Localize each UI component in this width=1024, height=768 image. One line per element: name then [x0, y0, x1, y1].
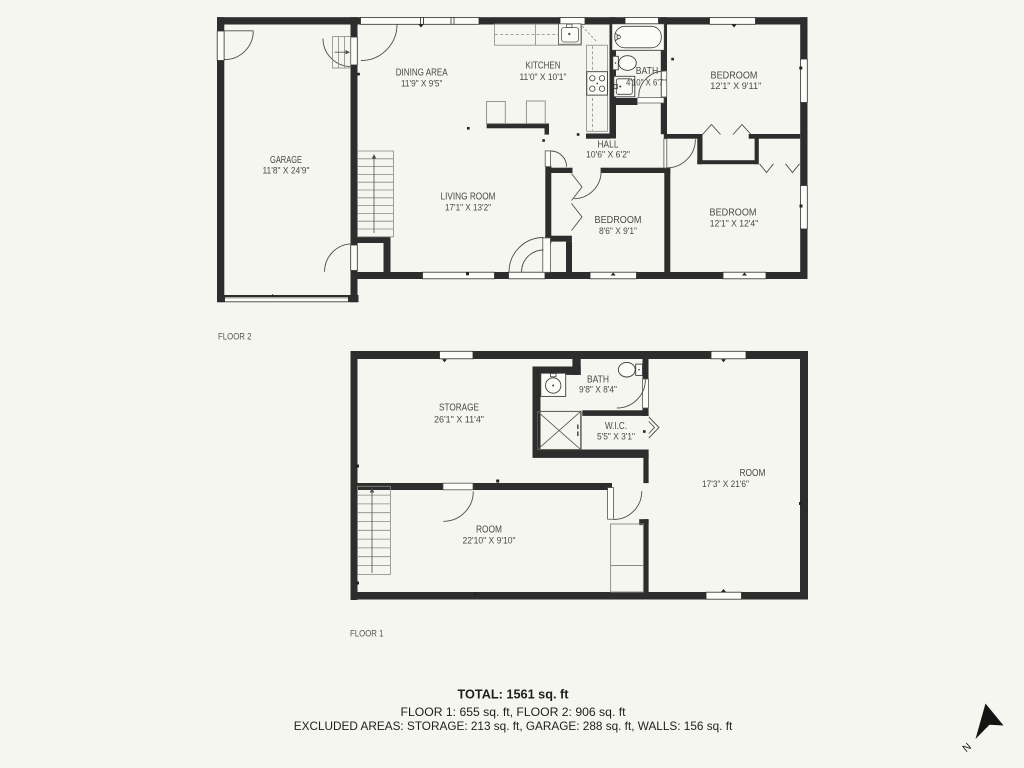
svg-text:FLOOR 1: FLOOR 1 [350, 629, 384, 640]
svg-text:TOTAL: 1561 sq. ft: TOTAL: 1561 sq. ft [458, 687, 570, 702]
svg-text:17'1" X 13'2": 17'1" X 13'2" [445, 202, 491, 213]
svg-text:11'8" X 24'9": 11'8" X 24'9" [263, 164, 310, 175]
svg-text:EXCLUDED AREAS: STORAGE: 213 s: EXCLUDED AREAS: STORAGE: 213 sq. ft, GAR… [294, 719, 733, 733]
svg-text:10'6" X 6'2": 10'6" X 6'2" [586, 148, 630, 159]
svg-text:9'8" X 8'4": 9'8" X 8'4" [579, 383, 617, 394]
svg-text:22'10" X 9'10": 22'10" X 9'10" [463, 535, 516, 546]
svg-text:5'5" X 3'1": 5'5" X 3'1" [597, 430, 635, 441]
svg-text:11'0" X 10'1": 11'0" X 10'1" [520, 71, 567, 82]
svg-text:26'1" X 11'4": 26'1" X 11'4" [434, 414, 484, 425]
svg-text:11'9" X 9'5": 11'9" X 9'5" [401, 78, 443, 89]
svg-text:12'1" X 12'4": 12'1" X 12'4" [710, 217, 759, 228]
svg-text:BATH: BATH [636, 66, 659, 77]
svg-text:12'1" X 9'11": 12'1" X 9'11" [710, 80, 761, 91]
svg-text:FLOOR 1: 655 sq. ft, FLOOR 2:: FLOOR 1: 655 sq. ft, FLOOR 2: 906 sq. ft [401, 705, 627, 719]
svg-text:8'6" X 9'1": 8'6" X 9'1" [599, 225, 637, 236]
svg-text:KITCHEN: KITCHEN [526, 60, 561, 71]
svg-text:STORAGE: STORAGE [439, 403, 479, 414]
svg-text:FLOOR 2: FLOOR 2 [218, 332, 252, 343]
svg-text:4'10" X 6'7": 4'10" X 6'7" [626, 76, 666, 87]
svg-text:17'3" X 21'6": 17'3" X 21'6" [702, 478, 749, 489]
